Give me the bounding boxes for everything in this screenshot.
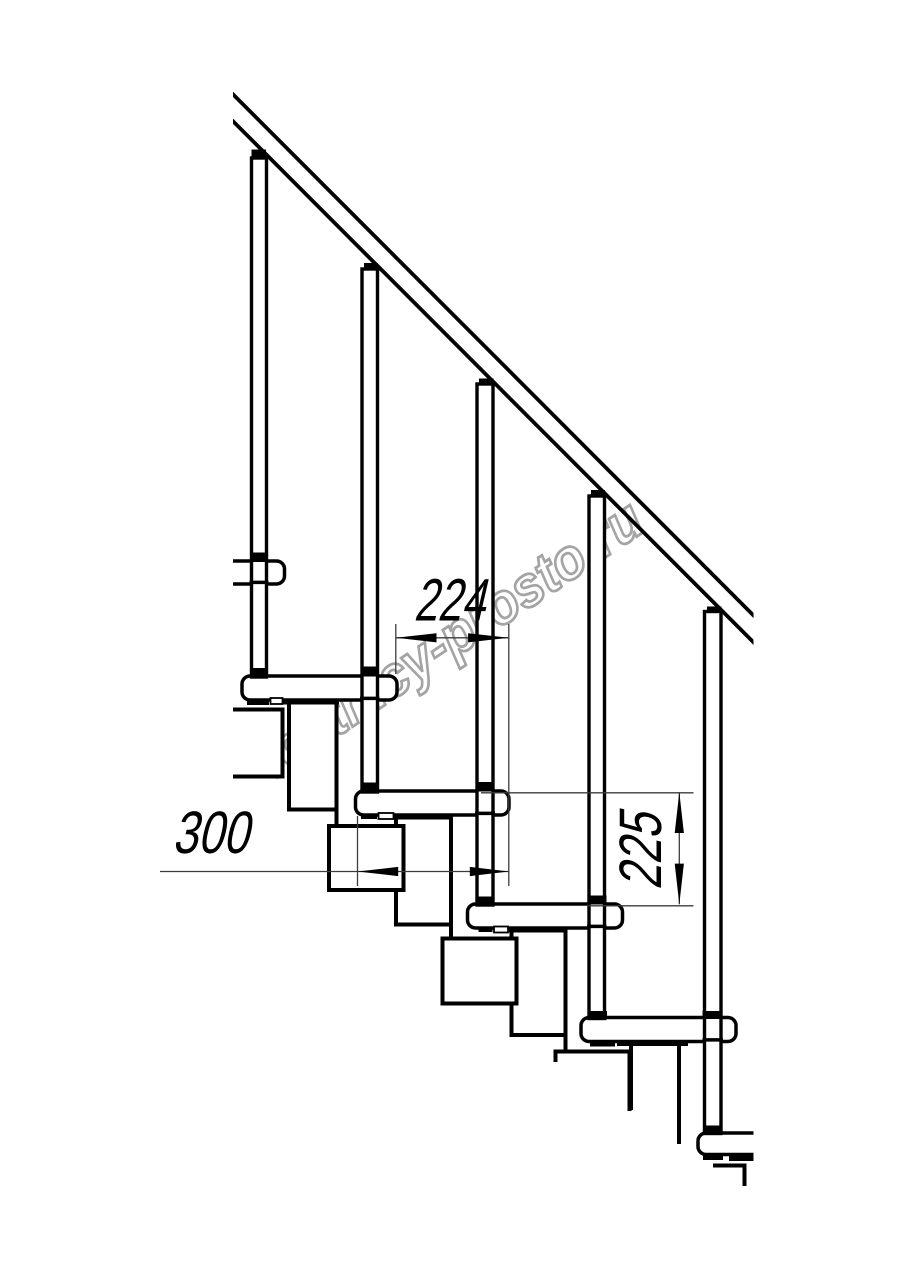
svg-text:225: 225 <box>607 801 674 892</box>
svg-text:300: 300 <box>169 799 260 866</box>
